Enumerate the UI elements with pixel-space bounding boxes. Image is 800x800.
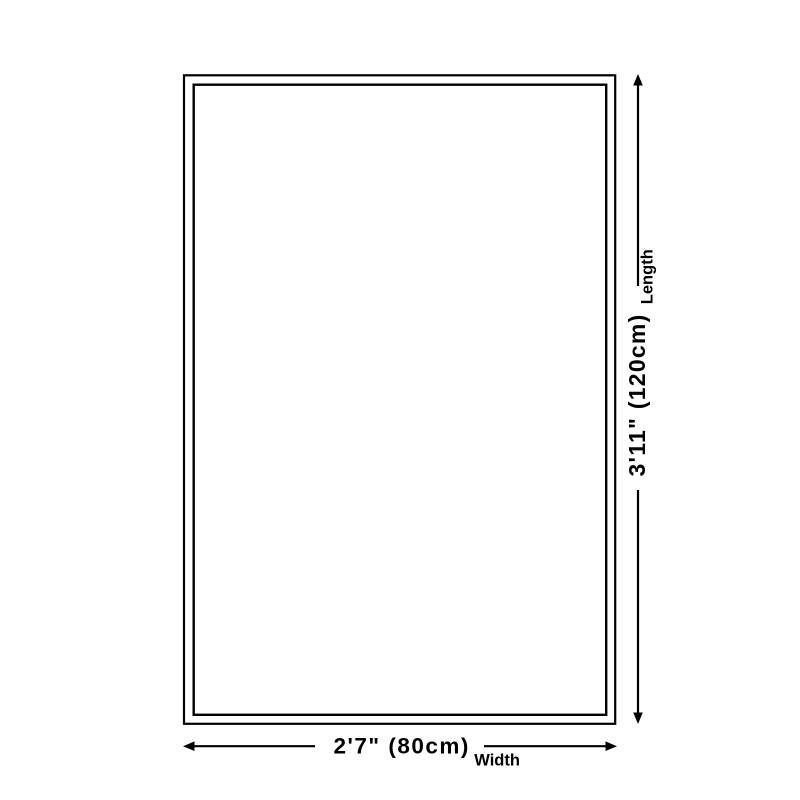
svg-text:3'11" (120cm): 3'11" (120cm) — [624, 313, 650, 476]
svg-text:Length: Length — [639, 249, 657, 304]
svg-text:Width: Width — [474, 752, 520, 770]
svg-text:2'7" (80cm): 2'7" (80cm) — [334, 734, 470, 759]
